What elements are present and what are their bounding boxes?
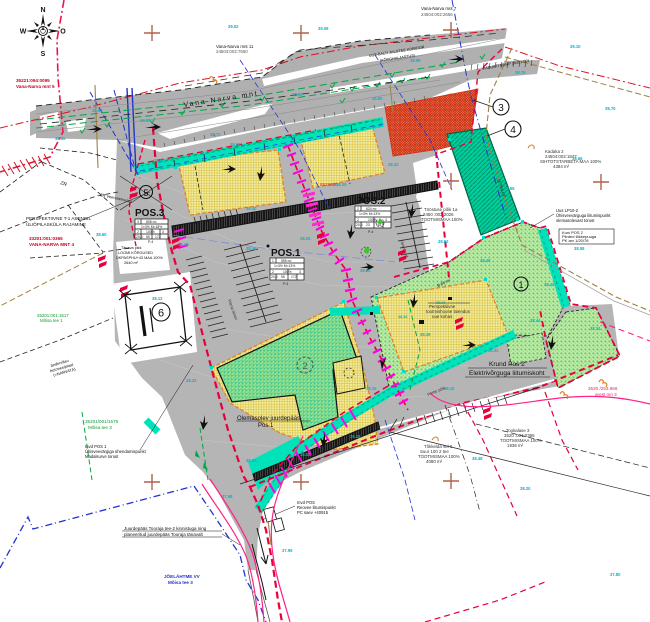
svg-text:35201/001/1575: 35201/001/1575 — [85, 419, 119, 424]
svg-text:38.12: 38.12 — [152, 296, 163, 301]
svg-text:4: 4 — [510, 125, 516, 136]
svg-text:Madalsurve torust: Madalsurve torust — [85, 454, 119, 459]
svg-text:38.36: 38.36 — [398, 315, 408, 319]
svg-text:1: 1 — [518, 280, 523, 290]
svg-text:38.25: 38.25 — [300, 236, 311, 241]
svg-text:1936 m²: 1936 m² — [507, 443, 524, 448]
svg-text:Vana-Narva mnt 5: Vana-Narva mnt 5 — [16, 84, 55, 89]
svg-text:38.40: 38.40 — [544, 282, 555, 287]
svg-text:55: 55 — [146, 235, 150, 239]
svg-text:LOOMI KÕRGUSED: LOOMI KÕRGUSED — [118, 250, 153, 255]
svg-text:38.28: 38.28 — [420, 332, 431, 337]
svg-text:1×3% M=13%: 1×3% M=13% — [359, 212, 380, 216]
svg-text:38.02: 38.02 — [300, 452, 311, 457]
svg-text:38.66: 38.66 — [572, 156, 583, 161]
svg-text:POS.3: POS.3 — [135, 208, 165, 219]
svg-text:2: 2 — [272, 270, 274, 274]
svg-text:20,4: 20,4 — [136, 235, 143, 239]
svg-text:3: 3 — [299, 270, 301, 274]
svg-text:38.46: 38.46 — [246, 246, 257, 251]
svg-text:24504:002:2656: 24504:002:2656 — [421, 12, 453, 17]
svg-text:37.98: 37.98 — [222, 494, 233, 499]
svg-text:3: 3 — [162, 230, 164, 234]
svg-text:38.55: 38.55 — [55, 136, 66, 141]
svg-text:38.95: 38.95 — [410, 58, 421, 63]
svg-text:2: 2 — [357, 218, 359, 222]
svg-text:Mõisa tee 3: Mõisa tee 3 — [88, 425, 112, 430]
svg-text:Vana-Narva mnt 7: Vana-Narva mnt 7 — [421, 6, 457, 11]
svg-text:Krund Pos 2: Krund Pos 2 — [489, 361, 525, 368]
svg-text:38.18: 38.18 — [350, 434, 361, 439]
svg-text:624 m²: 624 m² — [366, 207, 377, 211]
svg-text:W: W — [20, 29, 27, 36]
svg-text:P-4: P-4 — [283, 282, 288, 286]
svg-text:PC saev +40915: PC saev +40915 — [297, 510, 329, 515]
svg-text:S: S — [41, 51, 46, 58]
svg-text:POS.1: POS.1 — [271, 248, 301, 259]
svg-text:100%: 100% — [368, 218, 377, 222]
svg-text:38.10: 38.10 — [444, 386, 455, 391]
svg-text:39.08: 39.08 — [318, 26, 329, 31]
svg-text:Tänava pikk: Tänava pikk — [121, 246, 142, 250]
svg-text:Mõisa tee 1: Mõisa tee 1 — [40, 318, 63, 323]
svg-text:35221:094:0095: 35221:094:0095 — [16, 78, 50, 83]
svg-text:38.25: 38.25 — [360, 268, 371, 273]
svg-text:ÜLIÕPILASKÜLA RAJAMINE: ÜLIÕPILASKÜLA RAJAMINE — [26, 221, 86, 227]
svg-text:39.10: 39.10 — [570, 44, 581, 49]
svg-text:1×3% M=18%: 1×3% M=18% — [141, 225, 162, 229]
svg-text:33201:001:0365: 33201:001:0365 — [29, 236, 63, 241]
svg-text:38.75: 38.75 — [515, 70, 526, 75]
svg-text:4080 m²: 4080 m² — [426, 459, 443, 464]
svg-text:38.80: 38.80 — [372, 96, 383, 101]
svg-text:38.50: 38.50 — [154, 158, 165, 163]
svg-text:N: N — [40, 7, 45, 14]
svg-text:38.48: 38.48 — [480, 258, 491, 263]
svg-text:uue kohas: uue kohas — [432, 314, 453, 319]
svg-text:38.90: 38.90 — [140, 118, 151, 123]
svg-text:20,4: 20,4 — [271, 275, 278, 279]
svg-text:2: 2 — [137, 230, 139, 234]
svg-text:172: 172 — [291, 275, 297, 279]
svg-text:4384 m²: 4384 m² — [553, 164, 570, 169]
svg-text:TOOTMISMAA 100%: TOOTMISMAA 100% — [421, 217, 463, 222]
svg-text:JÕELÄHTME VV: JÕELÄHTME VV — [164, 573, 201, 579]
svg-text:38.55: 38.55 — [504, 186, 515, 191]
svg-text:38.44: 38.44 — [530, 318, 541, 323]
svg-text:Pos 1: Pos 1 — [258, 423, 274, 429]
svg-text:38.30: 38.30 — [246, 206, 257, 211]
svg-text:38.64: 38.64 — [92, 108, 103, 113]
svg-text:O: O — [60, 29, 66, 36]
svg-text:3: 3 — [385, 218, 387, 222]
svg-text:23: 23 — [366, 223, 370, 227]
svg-text:37.95: 37.95 — [282, 548, 293, 553]
svg-text:6: 6 — [158, 308, 164, 320]
svg-text:38.42: 38.42 — [388, 162, 399, 167]
svg-text:38.34: 38.34 — [590, 326, 601, 331]
svg-text:38.40: 38.40 — [178, 242, 189, 247]
svg-text:555 m²: 555 m² — [281, 259, 292, 263]
svg-text:38.48: 38.48 — [472, 456, 483, 461]
svg-text:100%: 100% — [283, 270, 292, 274]
svg-text:3: 3 — [498, 103, 504, 114]
svg-text:2: 2 — [302, 361, 307, 371]
svg-text:3520 /253.666: 3520 /253.666 — [588, 386, 618, 391]
svg-text:SIHTOTSTARBETA MAA 100%: SIHTOTSTARBETA MAA 100% — [540, 159, 601, 164]
svg-text:1: 1 — [272, 259, 274, 263]
svg-text:38.85: 38.85 — [292, 92, 303, 97]
svg-text:38.58: 38.58 — [574, 246, 585, 251]
svg-text:38.70: 38.70 — [605, 106, 616, 111]
svg-text:PK arv 1/20/78: PK arv 1/20/78 — [562, 238, 589, 243]
svg-text:55: 55 — [281, 275, 285, 279]
svg-text:38.72: 38.72 — [210, 132, 221, 137]
svg-text:P-4: P-4 — [148, 240, 153, 244]
svg-text:ÜKPASPHU+43 MAA 100%: ÜKPASPHU+43 MAA 100% — [116, 256, 164, 260]
svg-text:38.22: 38.22 — [186, 378, 197, 383]
svg-text:20,4: 20,4 — [356, 223, 363, 227]
svg-text:38.30: 38.30 — [436, 301, 446, 305]
svg-text:24504:002:7650: 24504:002:7650 — [216, 49, 248, 54]
svg-text:38.62: 38.62 — [460, 136, 471, 141]
svg-text:38.15: 38.15 — [366, 386, 377, 391]
svg-text:PERSPEKTIIVNE T-1 ASENDIL: PERSPEKTIIVNE T-1 ASENDIL — [26, 216, 91, 221]
svg-text:1×3% M=13%: 1×3% M=13% — [274, 264, 295, 268]
svg-text:38.60: 38.60 — [96, 232, 107, 237]
svg-text:Elektrivõrguga liitumiskoht: Elektrivõrguga liitumiskoht — [469, 370, 545, 377]
svg-text:olemasolevast torust: olemasolevast torust — [556, 218, 595, 223]
svg-text:38.05: 38.05 — [246, 458, 257, 463]
svg-text:172: 172 — [155, 235, 161, 239]
svg-text:37.80: 37.80 — [610, 572, 621, 577]
svg-text:Juurdepääs Tooraja tee-2 kinni: Juurdepääs Tooraja tee-2 kinnistuga ning — [124, 526, 207, 531]
svg-text:VANA-NARVA MNT 4: VANA-NARVA MNT 4 — [29, 242, 74, 247]
svg-text:808 m²: 808 m² — [146, 220, 157, 224]
svg-text:3: 3 — [137, 220, 139, 224]
svg-text:2: 2 — [357, 207, 359, 211]
svg-text:38.32: 38.32 — [488, 348, 499, 353]
svg-text:Mõisa tee 3: Mõisa tee 3 — [168, 580, 193, 585]
svg-text:2640 m²: 2640 m² — [124, 261, 139, 265]
svg-text:P-4: P-4 — [368, 230, 373, 234]
svg-text:100%: 100% — [146, 230, 155, 234]
svg-text:38.20: 38.20 — [520, 486, 531, 491]
svg-text:38.35: 38.35 — [336, 182, 347, 187]
svg-text:planeeritud juurdepääs Tooraja: planeeritud juurdepääs Tooraja tänavalt — [124, 532, 203, 537]
svg-text:38.58: 38.58 — [230, 142, 241, 147]
svg-text:39.02: 39.02 — [228, 24, 239, 29]
svg-text:POS.2: POS.2 — [356, 196, 386, 207]
svg-text:38.52: 38.52 — [438, 239, 449, 244]
